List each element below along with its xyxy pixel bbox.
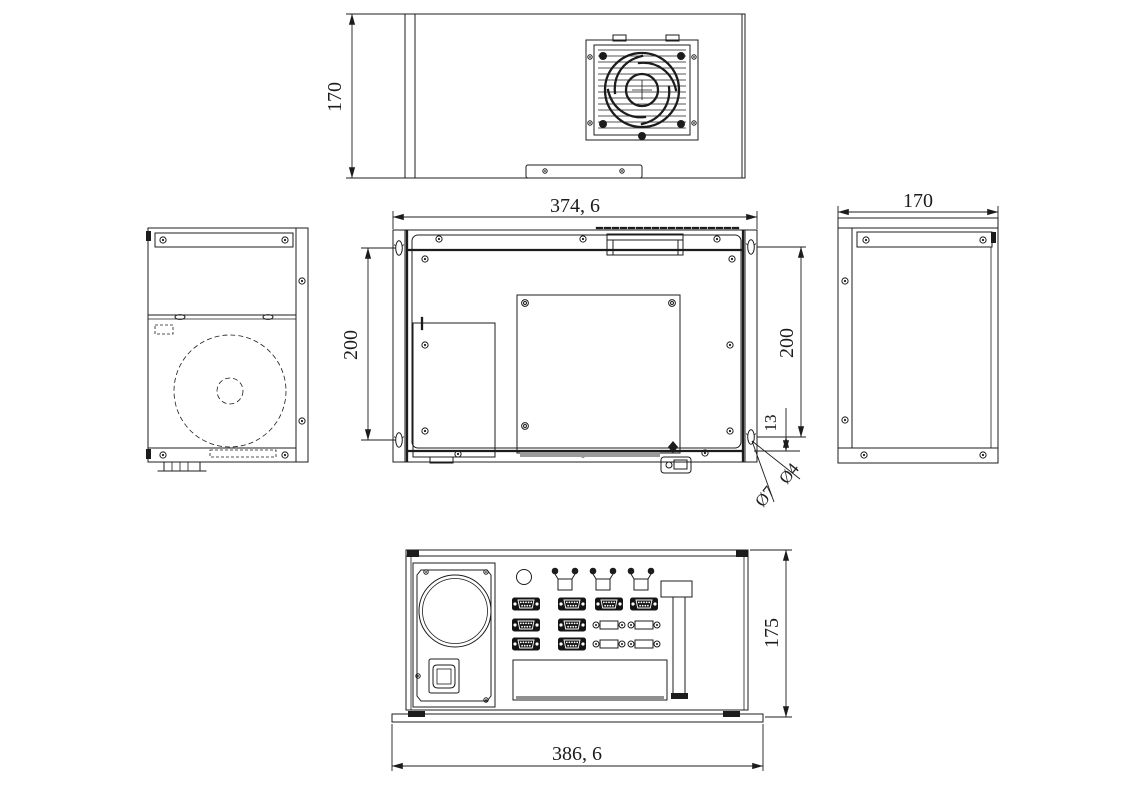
dim-bottom-view-width: 386, 6 [552, 743, 602, 765]
db9-connector-icon [558, 638, 586, 651]
plate-hole-icon [522, 423, 529, 430]
rear-view: 374, 6 [340, 195, 806, 510]
screw-icon [580, 236, 586, 242]
db9-connector-icon [630, 598, 658, 611]
plate-hole-icon [669, 300, 676, 307]
dim-bottom-view-height: 175 [761, 618, 783, 648]
screw-icon [692, 55, 696, 59]
slim-connector-icon [593, 621, 625, 629]
psu-fan-icon [419, 575, 491, 647]
serial-port-panel [512, 598, 660, 651]
antenna-mount [661, 581, 692, 699]
dim-side-view-depth: 170 [903, 190, 933, 212]
screw-icon [729, 256, 735, 262]
screw-icon [588, 55, 592, 59]
chassis-drawing: 170 [0, 0, 1147, 798]
right-side-view: 170 [838, 190, 998, 463]
screw-icon [422, 428, 428, 434]
slim-connector-icon [628, 640, 660, 648]
screw-icon [416, 674, 420, 678]
screw-icon [282, 237, 288, 243]
dimension-side-depth: 170 [838, 190, 998, 221]
top-mount-bracket [526, 165, 642, 178]
bottom-latch [661, 457, 691, 473]
db9-connector-icon [558, 619, 586, 632]
base-flange [392, 714, 763, 722]
dim-top-view-height: 170 [324, 82, 346, 112]
db9-connector-icon [512, 619, 540, 632]
expansion-slot-area [513, 660, 667, 700]
screw-icon [422, 342, 428, 348]
dimension-bottom-height: 175 [750, 550, 792, 717]
dimension-mount-span-left: 200 [340, 248, 396, 440]
dim-keyhole-slot-diameter: Ø4 [775, 459, 803, 487]
keyhole-slot-icon [746, 240, 756, 254]
dimension-mount-edge-offset: 13 [754, 408, 800, 451]
psu-area [413, 563, 495, 707]
terminal-connector-icon [552, 568, 579, 590]
screw-icon [842, 417, 848, 423]
dimension-rear-width: 374, 6 [393, 195, 757, 229]
screw-icon [299, 418, 305, 424]
dim-mount-span-right: 200 [776, 328, 798, 358]
db9-connector-icon [558, 598, 586, 611]
db9-connector-icon [512, 638, 540, 651]
dim-mount-span-left: 200 [340, 330, 362, 360]
terminal-connector-icon [590, 568, 617, 590]
screw-icon [863, 237, 869, 243]
drive-circle-hidden-outline [174, 335, 286, 447]
screw-icon [727, 342, 733, 348]
screw-icon [861, 452, 867, 458]
screw-icon [436, 236, 442, 242]
side-sub-panel [413, 323, 495, 457]
terminal-connector-icon [628, 568, 655, 590]
fan-grille [586, 35, 698, 140]
foot [158, 462, 206, 471]
db9-connector-icon [512, 598, 540, 611]
dim-keyhole-hole-diameter: Ø7 [751, 482, 779, 510]
screw-icon [422, 256, 428, 262]
dimension-mount-span-right: 200 [757, 247, 806, 437]
power-button [517, 570, 532, 585]
screw-icon [588, 121, 592, 125]
screw-icon [543, 169, 547, 173]
screw-icon [714, 236, 720, 242]
screw-icon [160, 452, 166, 458]
power-inlet-socket [429, 659, 459, 693]
access-plate [517, 295, 680, 453]
screw-icon [842, 278, 848, 284]
screw-icon [160, 237, 166, 243]
slim-connector-icon [593, 640, 625, 648]
screw-icon [620, 169, 624, 173]
screw-icon [299, 278, 305, 284]
db9-connector-icon [595, 598, 623, 611]
screw-icon [980, 237, 986, 243]
keyhole-slot-icon [746, 430, 756, 444]
bottom-view: 386, 6 175 [392, 550, 792, 771]
dimension-bottom-width: 386, 6 [392, 724, 763, 771]
screw-icon [727, 428, 733, 434]
slim-connector-icon [628, 621, 660, 629]
engineering-drawing-canvas: 170 [0, 0, 1147, 798]
left-side-view [146, 228, 308, 471]
screw-icon [692, 121, 696, 125]
dimension-top-height: 170 [324, 14, 405, 178]
dim-mount-edge-offset: 13 [761, 415, 780, 432]
plate-hole-icon [522, 300, 529, 307]
screw-icon [980, 452, 986, 458]
screw-icon [282, 452, 288, 458]
top-view: 170 [324, 14, 745, 178]
dim-rear-width: 374, 6 [550, 195, 600, 217]
fan-bracket-edge [607, 234, 683, 255]
